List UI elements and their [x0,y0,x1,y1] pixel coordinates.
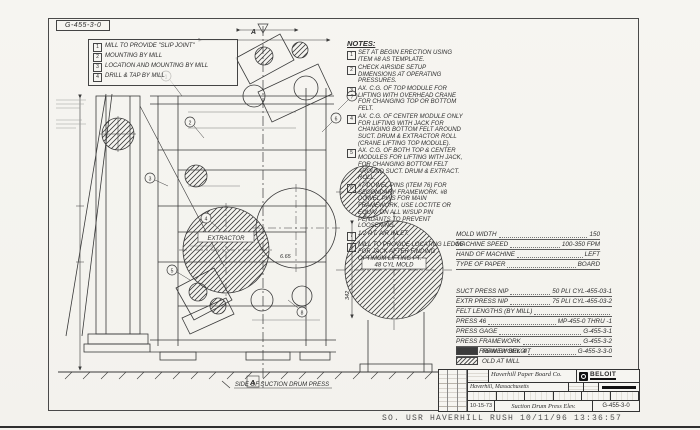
corner-drawing-number: G-455-3-0 [56,20,110,31]
spec-label: SUCT PRESS NIP [456,288,508,295]
approval-cell [568,383,583,391]
legend-item: 1 MILL TO PROVIDE "SLIP JOINT" [93,43,233,52]
note-text: SET AT BEGIN ERECTION USING ITEM #8 AS T… [358,50,465,63]
legend-item-text: MOUNTING BY MILL [105,53,162,60]
note-number: 6 [347,184,356,193]
mill-work-legend: 1 MILL TO PROVIDE "SLIP JOINT" 2 MOUNTIN… [88,39,238,86]
beloit-logo: BELOIT [576,370,639,382]
legend-item-number: 1 [93,43,102,52]
dim-665: 6.65 [280,254,292,260]
note-text: AX. C.G. OF CENTER MODULE ONLY FOR LIFTI… [358,114,465,148]
table-row: MOLD WIDTH 150 [456,231,600,240]
stamp-cell [582,392,611,400]
stamp-cell [497,392,526,400]
solid-swatch [456,347,478,355]
cyl-mold-label: 48 CYL MOLD [375,263,415,269]
notes-title: NOTES: [347,40,465,48]
stamp-cell [554,392,583,400]
spec-mid-value: 50 PLI [552,288,570,295]
leader-dots [488,318,556,325]
table-row: MACHINE SPEED 100-350 FPM [456,241,600,250]
leader-dots [510,298,550,305]
spec-value: CYL-455-03-2 [572,298,612,305]
spec-value: 100-350 FPM [562,241,600,248]
revision-column [458,370,467,411]
table-row: HAND OF MACHINE LEFT [456,251,600,260]
spec-label: PRESS FRAMEWORK [456,338,521,345]
legend-new-label: NEW BY BELOIT [482,348,531,355]
title-block: Haverhill Paper Board Co. BELOIT Haverhi… [438,369,640,412]
spec-label: HAND OF MACHINE [456,251,515,258]
note-item: 7 1/2 P.T. AIR INLET. [347,231,465,241]
legend-item: 4 DRILL & TAP BY MILL [93,73,233,82]
note-number: 8 [347,243,356,252]
legend-item-number: 3 [93,63,102,72]
note-item: 1 SET AT BEGIN ERECTION USING ITEM #8 AS… [347,50,465,63]
extractor-roll: EXTRACTOR [179,203,273,297]
balloon-callout: 8 [301,311,304,317]
revision-column [448,370,457,411]
note-text: AX. C.G. OF BOTH TOP & CENTER MODULES FO… [358,148,465,182]
legend-old-row: OLD AT MILL [456,357,531,365]
balloon-callout: 4 [205,217,208,223]
stamp-cell [611,392,640,400]
legend-new-row: NEW BY BELOIT [456,347,531,355]
table-row: PRESS GAGE G-455-3-1 [456,328,612,337]
leader-dots [523,338,582,345]
leader-dots [517,251,583,258]
note-number: 7 [347,232,356,241]
note-text: MILL TO PROVIDE LOCATING LEDGE FOR JACK … [358,242,465,262]
legend-item-number: 2 [93,53,102,62]
beloit-logo-icon [579,372,588,381]
spec-value: CYL-455-03-1 [572,288,612,295]
revision-column [439,370,448,411]
spec-label: PRESS GAGE [456,328,497,335]
balloon-callout: 2 [189,121,192,127]
beloit-brand-text: BELOIT [590,372,616,381]
spec-mid-value: 75 PLI [552,298,570,305]
spec-label: TYPE OF PAPER [456,261,505,268]
title-block-row-4: 10-15-73 Suction Drum Press Elev. G-455-… [468,401,639,411]
note-number: 1 [347,51,356,60]
legend-item-text: MILL TO PROVIDE "SLIP JOINT" [105,43,195,50]
note-text: #7 DOWEL PINS (ITEM 76) FOR SECONDARY FR… [358,183,465,230]
section-flag-top: A [250,29,256,36]
brand-bar [598,383,639,391]
table-row: PRESS 46 MP-455-0 THRU -1 [456,318,612,327]
title-block-row-3 [468,392,639,401]
customer-location: Haverhill, Massachusetts [468,384,568,390]
baseline-label: SIDE OF SUCTION DRUM PRESS [235,382,329,388]
leader-dots [528,348,576,355]
drawing-date: 10-15-73 [468,401,495,411]
balloon-callout: 5 [171,269,174,275]
note-text: 1/2 P.T. AIR INLET. [358,231,409,241]
balloon-callout: 6 [335,117,338,123]
spec-value: G-455-3-2 [583,338,612,345]
approval-cells [468,370,489,382]
table-row: SUCT PRESS NIP 50 PLI CYL-455-03-1 [456,288,612,297]
spec-label: MOLD WIDTH [456,231,497,238]
leader-dots [510,241,560,248]
spec-value: G-455-3-3-0 [578,348,612,355]
note-item: 8 MILL TO PROVIDE LOCATING LEDGE FOR JAC… [347,242,465,262]
spec-value: 150 [589,231,600,238]
baseline-label-group: SIDE OF SUCTION DRUM PRESS [222,381,332,388]
drawing-number: G-455-3-0 [592,401,639,411]
side-annotation-marks [56,100,86,128]
machine-spec-table: MOLD WIDTH 150 MACHINE SPEED 100-350 FPM… [456,231,600,271]
drawing-title: Suction Drum Press Elev. [495,403,592,410]
legend-old-label: OLD AT MILL [482,358,520,365]
note-item: 2 CHECK AIRSIDE SETUP DIMENSIONS AT OPER… [347,65,465,85]
bottom-rule [0,426,700,428]
legend-item: 3 LOCATION AND MOUNTING BY MILL [93,63,233,72]
legend-item-number: 4 [93,73,102,82]
balloon-callout: 3 [149,177,152,183]
title-block-row-1: Haverhill Paper Board Co. BELOIT [468,370,639,383]
leader-dots [510,288,550,295]
spec-value: G-455-3-1 [583,328,612,335]
title-block-main: Haverhill Paper Board Co. BELOIT Haverhi… [468,370,639,411]
table-row: PRESS FRAMEWORK G-455-3-2 [456,338,612,347]
note-item: 5 AX. C.G. OF BOTH TOP & CENTER MODULES … [347,148,465,182]
note-item: 6 #7 DOWEL PINS (ITEM 76) FOR SECONDARY … [347,183,465,230]
note-item: 4 AX. C.G. OF CENTER MODULE ONLY FOR LIF… [347,114,465,148]
leader-dots [507,261,575,268]
leader-dots [499,328,581,335]
spec-label: EXTR PRESS NIP [456,298,508,305]
leader-dots [499,231,588,238]
table-row: EXTR PRESS NIP 75 PLI CYL-455-03-2 [456,298,612,307]
title-block-row-2: Haverhill, Massachusetts [468,383,639,392]
hatched-swatch [456,357,478,365]
spec-value: BOARD [578,261,600,268]
legend-item: 2 MOUNTING BY MILL [93,53,233,62]
spec-label: MACHINE SPEED [456,241,508,248]
note-number: 2 [347,66,356,75]
spec-value: MP-455-0 THRU -1 [558,318,612,325]
revision-strip [439,370,468,411]
note-text: CHECK AIRSIDE SETUP DIMENSIONS AT OPERAT… [358,65,465,85]
table-row: FELT LENGTHS (BY MILL) [456,308,612,317]
note-item: 3 AX. C.G. OF TOP MODULE FOR LIFTING WIT… [347,86,465,113]
spec-label: FELT LENGTHS (BY MILL) [456,308,532,315]
customer-name: Haverhill Paper Board Co. [489,370,576,382]
leader-dots [534,308,610,315]
new-old-legend: NEW BY BELOIT OLD AT MILL [456,347,531,367]
spec-value: LEFT [585,251,600,258]
table-row: TYPE OF PAPER BOARD [456,261,600,270]
note-number: 5 [347,149,356,158]
ground-baseline [58,372,448,379]
notes-panel: NOTES: 1 SET AT BEGIN ERECTION USING ITE… [347,40,465,263]
extractor-label: EXTRACTOR [208,236,246,242]
dim-342: 342 [345,291,351,300]
note-number: 3 [347,87,356,96]
legend-item-text: LOCATION AND MOUNTING BY MILL [105,63,208,70]
approval-cell [583,383,598,391]
stamp-cell [525,392,554,400]
legend-item-text: DRILL & TAP BY MILL [105,73,165,80]
stamp-cell [468,392,497,400]
note-number: 4 [347,115,356,124]
scan-footer-text: SO. USR HAVERHILL RUSH 10/11/96 13:36:57 [382,414,622,423]
spec-label: PRESS 46 [456,318,486,325]
note-text: AX. C.G. OF TOP MODULE FOR LIFTING WITH … [358,86,465,113]
